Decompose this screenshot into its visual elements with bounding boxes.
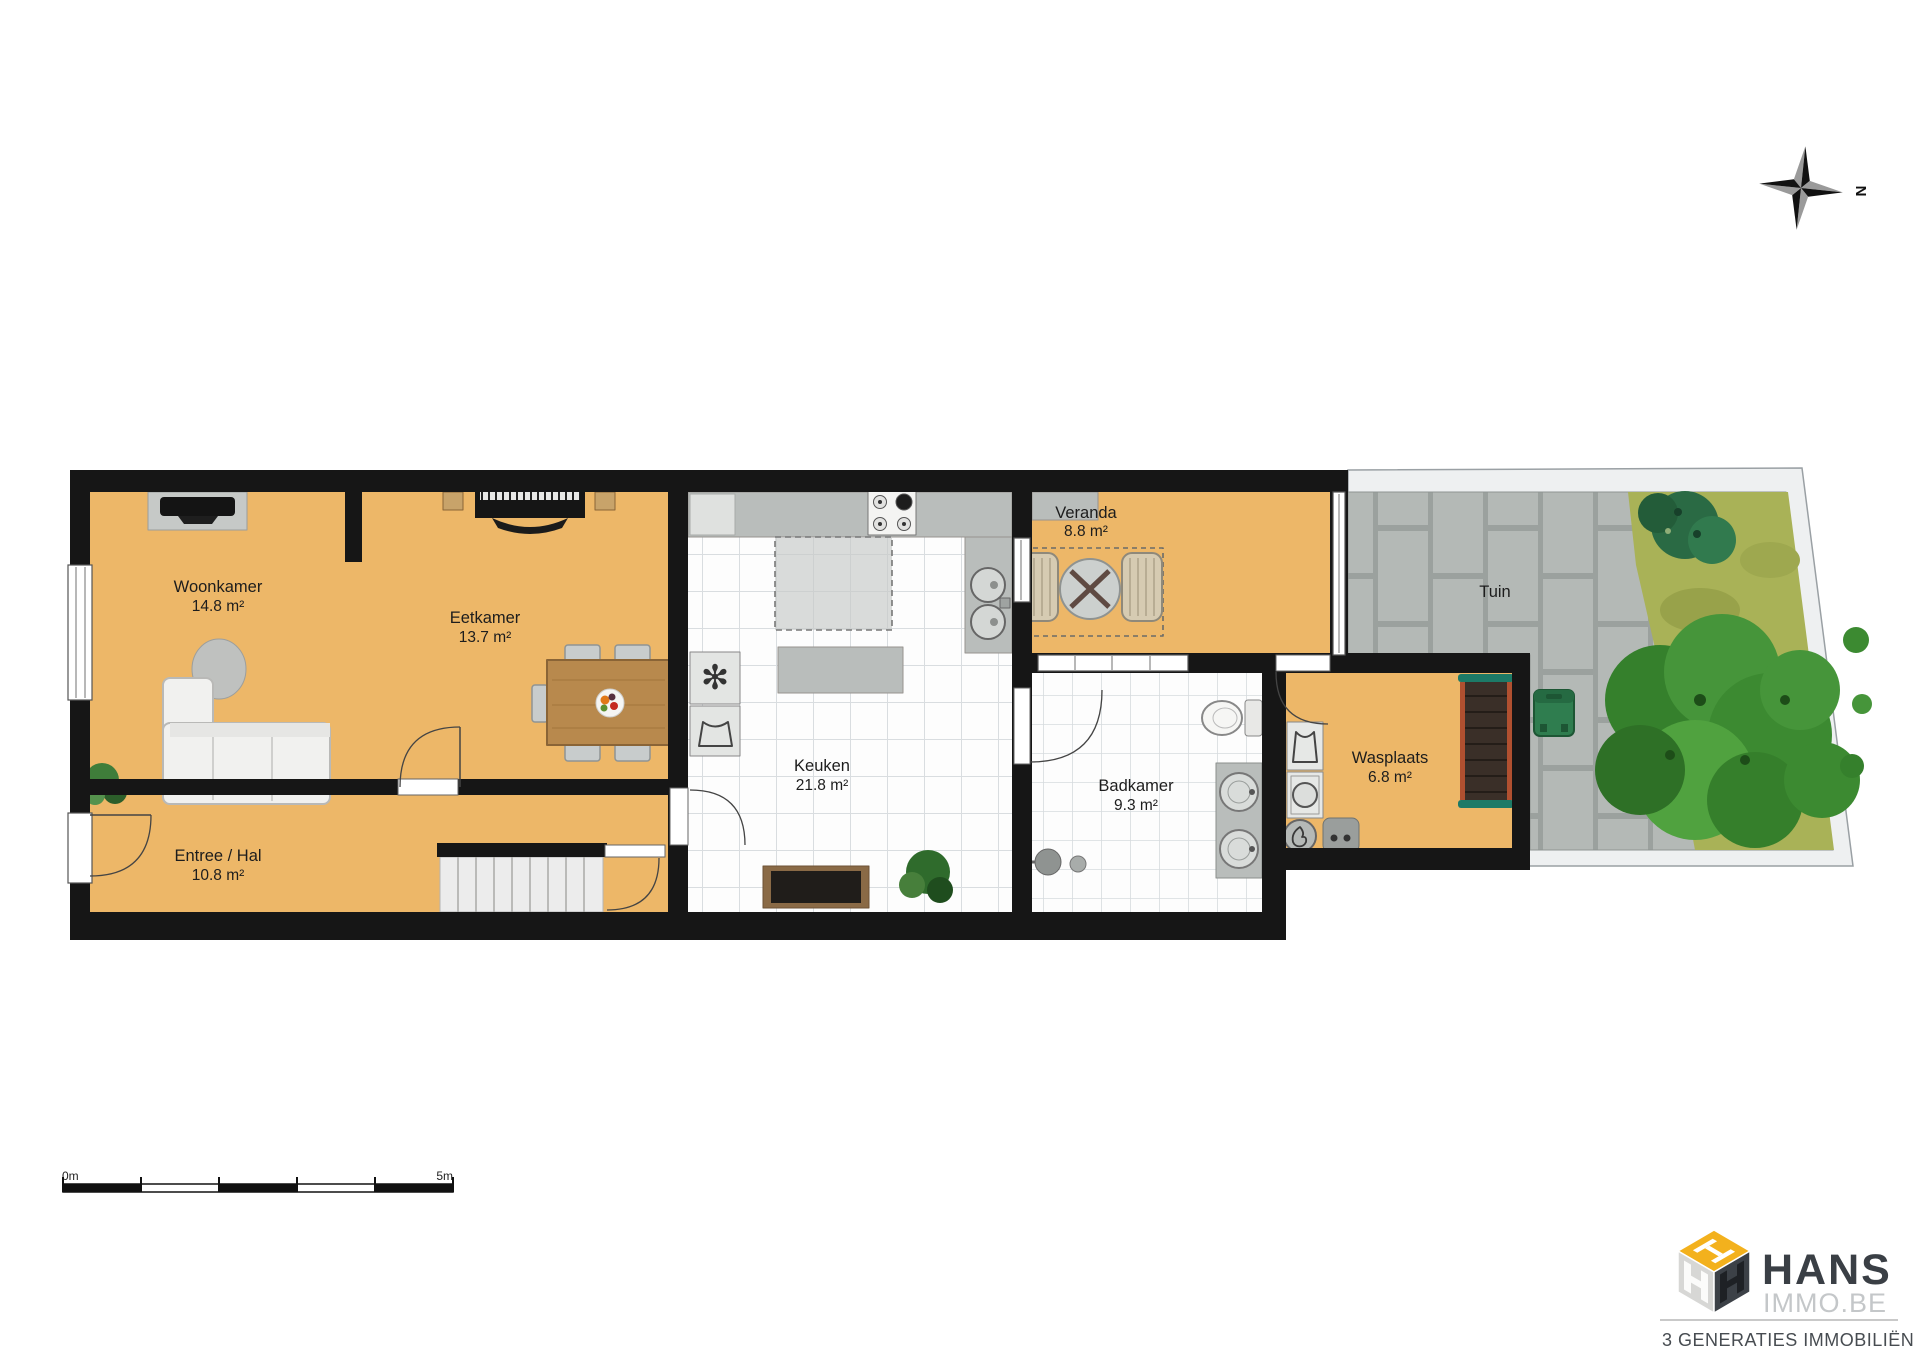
kitchen-appliances: ✻: [690, 652, 740, 756]
label-wasplaats: Wasplaats: [1352, 749, 1428, 767]
area-veranda: 8.8 m²: [1064, 523, 1108, 540]
leaf-overflow: [1840, 754, 1864, 778]
area-eetkamer: 13.7 m²: [459, 629, 512, 646]
area-entree: 10.8 m²: [192, 867, 245, 884]
boiler-icon: [1284, 820, 1316, 852]
scale-bar: 0m 5m: [62, 1169, 453, 1192]
waste-bin-icon: [1323, 818, 1359, 852]
label-badkamer: Badkamer: [1098, 777, 1174, 795]
tv-unit: [148, 492, 247, 530]
washing-machine-icon: [1287, 772, 1323, 818]
north-label: N: [1852, 186, 1869, 197]
label-keuken: Keuken: [794, 757, 850, 775]
label-woonkamer: Woonkamer: [174, 578, 263, 596]
window-veranda-garden: [1333, 492, 1345, 655]
fruit-bowl-icon: [596, 689, 624, 717]
kitchen-island: [778, 647, 903, 693]
doormat-rack: [1458, 674, 1514, 808]
compass-icon: N: [1755, 142, 1869, 234]
label-eetkamer: Eetkamer: [450, 609, 521, 627]
label-entree: Entree / Hal: [174, 847, 261, 865]
sideboard: [763, 866, 869, 908]
toilet-icon: [1202, 700, 1262, 736]
floorplan-page: ✻: [0, 0, 1920, 1358]
windows-veranda-bathroom: [1038, 655, 1188, 671]
label-tuin: Tuin: [1479, 583, 1511, 601]
window-kitchen-veranda: [1014, 538, 1030, 602]
leaf-overflow: [1852, 694, 1872, 714]
logo-brand: HANS: [1762, 1246, 1892, 1294]
kitchen-rug-dashed: [775, 537, 892, 630]
veranda-table: [1060, 559, 1120, 619]
vanity-sinks: [1216, 763, 1262, 878]
window-livingroom: [68, 565, 92, 700]
fan-icon: ✻: [701, 659, 730, 697]
stove-icon: [868, 491, 916, 535]
stairs: [440, 857, 603, 912]
dining-set: [532, 645, 670, 761]
area-badkamer: 9.3 m²: [1114, 797, 1158, 814]
floorplan-image: ✻: [0, 0, 1920, 1358]
agency-logo: HANS IMMO.BE 3 GENERATIES IMMOBILIËN: [1660, 1230, 1914, 1350]
area-woonkamer: 14.8 m²: [192, 598, 245, 615]
scale-start-label: 0m: [62, 1169, 79, 1183]
label-veranda: Veranda: [1055, 504, 1117, 522]
logo-domain: IMMO.BE: [1763, 1288, 1887, 1318]
logo-tagline: 3 GENERATIES IMMOBILIËN: [1662, 1330, 1914, 1350]
scale-end-label: 5m: [436, 1169, 453, 1183]
leaf-overflow: [1843, 627, 1869, 653]
grass-texture: [1740, 542, 1800, 578]
area-keuken: 21.8 m²: [796, 777, 849, 794]
area-wasplaats: 6.8 m²: [1368, 769, 1412, 786]
laundry-sink-icon: [1287, 722, 1323, 770]
garbage-bin: [1534, 690, 1574, 736]
